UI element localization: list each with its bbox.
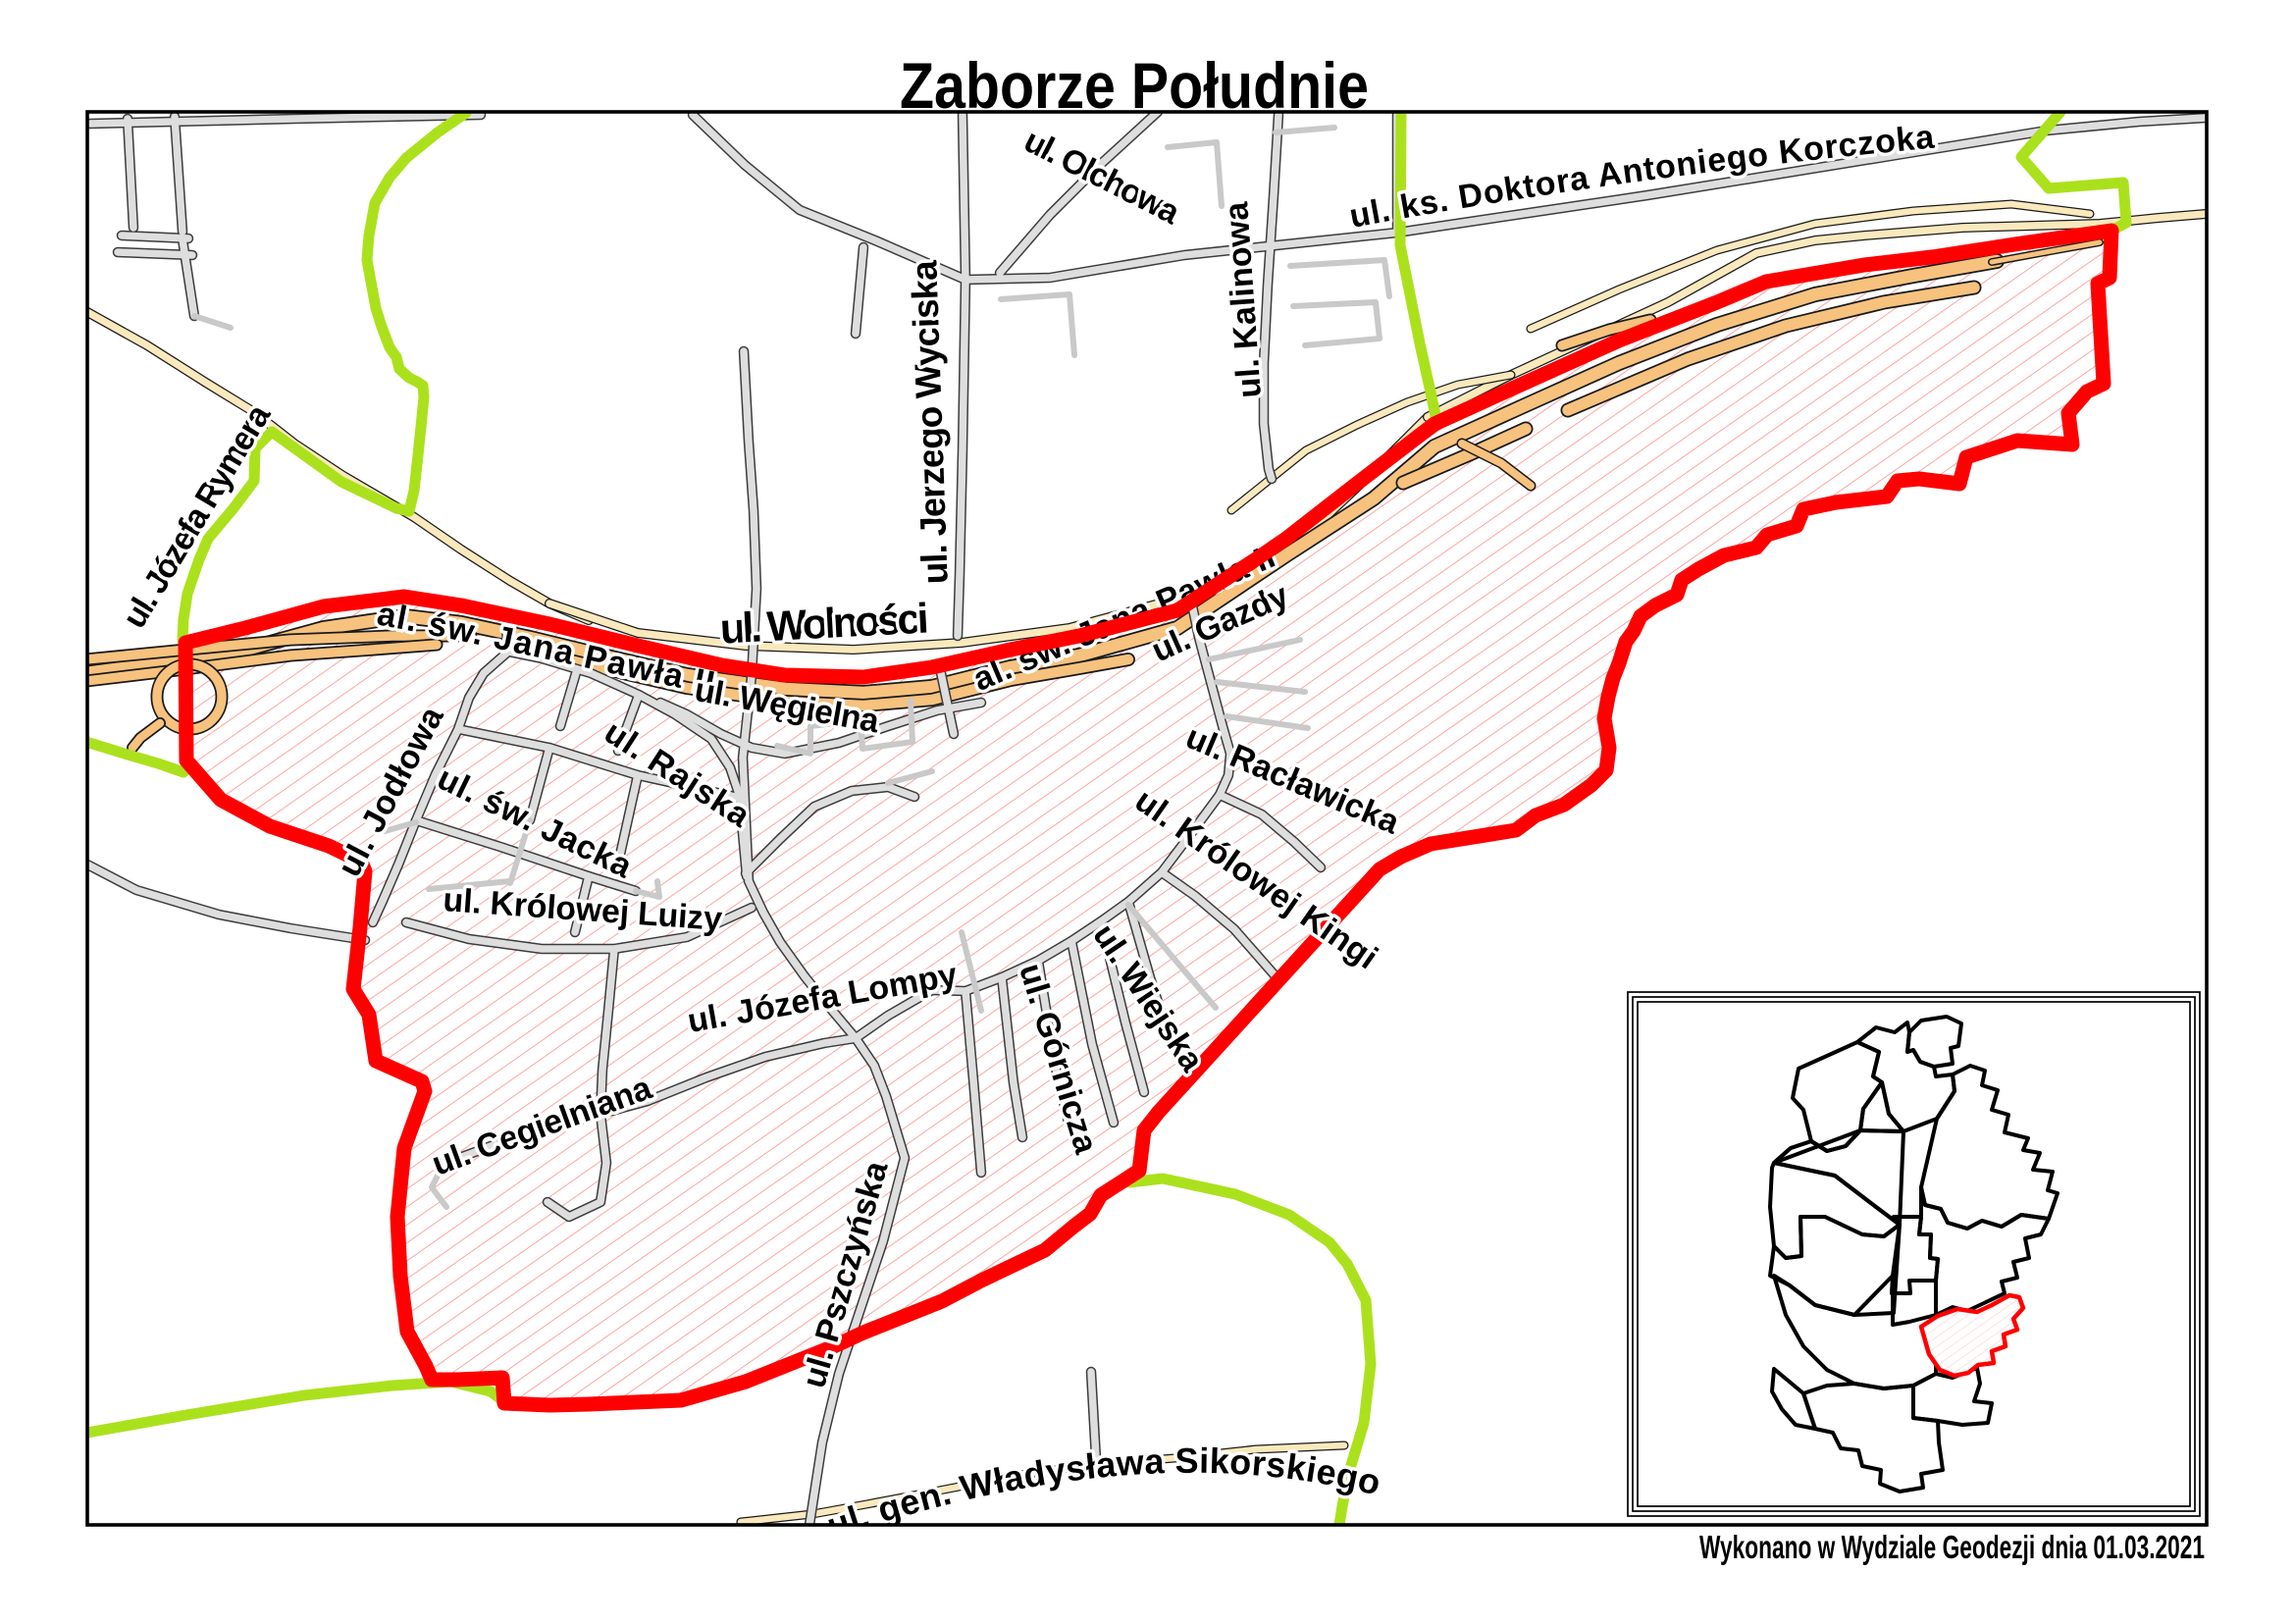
svg-text:Wykonano w Wydziale Geodezji d: Wykonano w Wydziale Geodezji dnia 01.03.…	[1699, 1529, 2205, 1565]
